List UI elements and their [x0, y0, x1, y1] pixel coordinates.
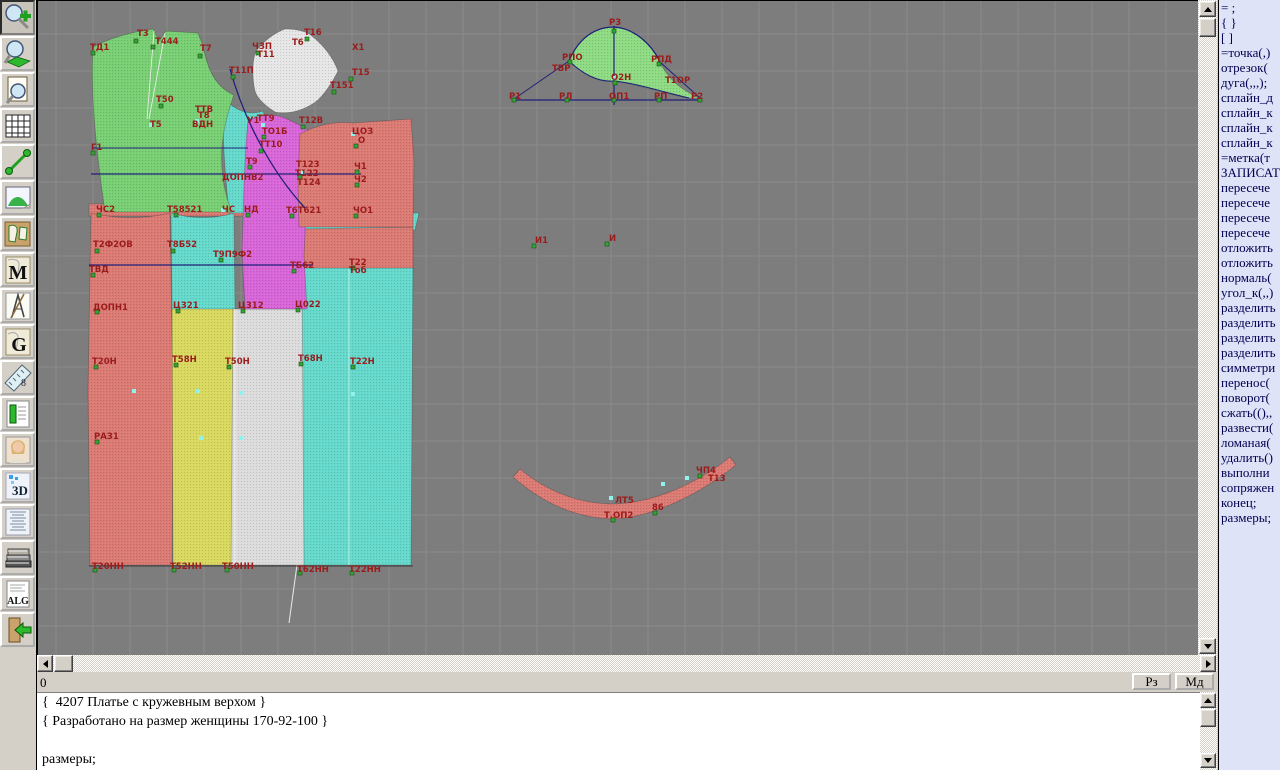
point-label: Т58521	[167, 205, 202, 215]
point-label: ТД1	[90, 43, 109, 53]
point-label: Т7	[200, 44, 212, 54]
scroll-right-button[interactable]	[1200, 655, 1216, 672]
exit-button[interactable]	[0, 612, 35, 647]
point-label: Т3	[137, 29, 149, 39]
portrait-icon	[2, 434, 33, 465]
point-label: Т15	[352, 68, 370, 78]
command-item[interactable]: разделить	[1219, 300, 1280, 315]
point-label: ВДН	[192, 120, 213, 130]
point-label: Ч1	[354, 162, 367, 172]
point-label: ТО1Б	[262, 127, 287, 137]
edscroll-thumb[interactable]	[1200, 709, 1216, 727]
ruler-icon: 8	[2, 362, 33, 393]
command-item[interactable]: ЗАПИСАТ	[1219, 165, 1280, 180]
point-marker-green[interactable]	[198, 54, 202, 58]
point-label: ДОПН1	[93, 303, 128, 313]
command-item[interactable]: разделить	[1219, 345, 1280, 360]
point-label: О2Н	[611, 73, 631, 83]
grid-icon	[2, 110, 33, 141]
point-label: Т11П	[229, 66, 254, 76]
status-row: 0 Рз Мд	[37, 672, 1217, 692]
command-item[interactable]: поворот(	[1219, 390, 1280, 405]
command-item[interactable]: выполни	[1219, 465, 1280, 480]
point-label: РП	[654, 92, 667, 102]
point-label: Т50	[156, 95, 174, 105]
picture-icon	[2, 182, 33, 213]
point-label: Т6	[292, 38, 304, 48]
up-arrow-icon	[1204, 694, 1212, 703]
piece-texture	[302, 268, 413, 565]
point-label: ОП1	[609, 92, 629, 102]
vscroll-thumb[interactable]	[1199, 18, 1216, 37]
point-label: И1	[535, 236, 548, 246]
pattern-drawing: ТД1Т3Т444Т7Т50Т5Г1ТТВТ8ВДНТ11ПЧЗПТ11Т6Т1…	[38, 1, 1198, 655]
letter-g-icon: G	[2, 326, 33, 357]
point-label: ЧО1	[353, 206, 373, 216]
point-label: Т444	[155, 37, 179, 47]
command-item[interactable]: размеры;	[1219, 510, 1280, 525]
command-item[interactable]: пересече	[1219, 180, 1280, 195]
point-label: Т5	[150, 120, 162, 130]
table-icon	[2, 398, 33, 429]
command-item[interactable]: отложить	[1219, 255, 1280, 270]
svg-text:ALG: ALG	[7, 596, 29, 607]
patterns-button[interactable]	[0, 216, 35, 251]
point-label: ДОПНВ2	[222, 173, 264, 183]
point-label: Ц321	[173, 301, 199, 311]
code-line: { 4207 Платье с кружевным верхом }	[37, 693, 1200, 712]
canvas-horizontal-scrollbar[interactable]	[37, 655, 1217, 672]
point-label: Т6Т621	[286, 206, 321, 216]
scroll-left-button[interactable]	[37, 655, 53, 672]
books-icon	[2, 542, 33, 573]
picture-button[interactable]	[0, 180, 35, 215]
point-marker-cyan[interactable]	[196, 389, 200, 393]
scroll-up-button[interactable]	[1199, 1, 1216, 17]
command-list: = ;{ }[ ]=точка(,)отрезок(дуга(,,,);спла…	[1218, 0, 1280, 770]
command-item[interactable]: дуга(,,,);	[1219, 75, 1280, 90]
point-marker-cyan[interactable]	[132, 389, 136, 393]
grid-button[interactable]	[0, 108, 35, 143]
point-label: Т9П9Ф2	[213, 250, 252, 260]
scroll-down-button[interactable]	[1199, 638, 1216, 654]
point-label: Т68Н	[298, 354, 323, 364]
point-label: Т16	[304, 28, 322, 38]
point-label: Т.ОП2	[604, 511, 633, 521]
model-photo-button[interactable]	[0, 432, 35, 467]
segment-button[interactable]	[0, 144, 35, 179]
point-marker-cyan[interactable]	[685, 476, 689, 480]
command-item[interactable]: =метка(т	[1219, 150, 1280, 165]
toolbar: M G 8	[0, 0, 37, 770]
drawing-canvas[interactable]: ТД1Т3Т444Т7Т50Т5Г1ТТВТ8ВДНТ11ПЧЗПТ11Т6Т1…	[37, 0, 1198, 655]
command-item[interactable]: сплайн_к	[1219, 120, 1280, 135]
zoom-fit-icon	[2, 38, 33, 69]
command-item[interactable]: { }	[1219, 15, 1280, 30]
segment-icon	[2, 146, 33, 177]
editor-scroll-up-button[interactable]	[1200, 693, 1216, 708]
point-label: Т151	[330, 81, 354, 91]
command-item[interactable]: угол_к(,,)	[1219, 285, 1280, 300]
table-button[interactable]	[0, 396, 35, 431]
view-3d-button[interactable]: 3D	[0, 468, 35, 503]
point-marker-cyan[interactable]	[199, 436, 203, 440]
point-label: РПД	[651, 55, 672, 65]
command-item[interactable]: разделить	[1219, 315, 1280, 330]
point-label: Т1ОР	[665, 76, 690, 86]
print-preview-icon	[2, 74, 33, 105]
point-label: ЛТ5	[615, 496, 634, 506]
command-item[interactable]: конец;	[1219, 495, 1280, 510]
point-label: Т13	[708, 474, 726, 484]
zoom-in-icon	[2, 2, 33, 33]
point-marker-cyan[interactable]	[661, 482, 665, 486]
down-arrow-icon	[1204, 758, 1212, 767]
point-label: Т62НН	[297, 565, 329, 575]
patterns-icon	[2, 218, 33, 249]
text-list-icon	[2, 506, 33, 537]
code-line: размеры;	[37, 750, 1200, 769]
grading-g-button[interactable]: G	[0, 324, 35, 359]
point-label: ЧС2	[96, 205, 115, 215]
point-label: Т20НН	[92, 562, 124, 572]
point-label: Ч2	[354, 175, 367, 185]
point-marker-cyan[interactable]	[239, 436, 243, 440]
point-marker-cyan[interactable]	[609, 496, 613, 500]
command-item[interactable]: [ ]	[1219, 30, 1280, 45]
command-item[interactable]: сопряжен	[1219, 480, 1280, 495]
command-item[interactable]: =точка(,)	[1219, 45, 1280, 60]
point-marker-cyan[interactable]	[351, 392, 355, 396]
code-line	[37, 731, 1200, 750]
point-label: ТТ10	[259, 140, 283, 150]
command-item[interactable]: сплайн_д	[1219, 90, 1280, 105]
compass-icon	[2, 290, 33, 321]
point-label: Т50НН	[222, 562, 254, 572]
hscroll-track[interactable]	[37, 655, 1217, 672]
point-label: Г1	[91, 143, 102, 153]
point-label: НД	[244, 205, 259, 215]
code-line: { Разработано на размер женщины 170-92-1…	[37, 712, 1200, 731]
down-arrow-icon	[1204, 644, 1212, 653]
point-label: Т8Б52	[167, 240, 197, 250]
alg-icon: ALG	[2, 578, 33, 609]
command-item[interactable]: пересече	[1219, 225, 1280, 240]
command-item[interactable]: пересече	[1219, 210, 1280, 225]
svg-text:G: G	[11, 334, 27, 356]
command-item[interactable]: сплайн_к	[1219, 105, 1280, 120]
point-label: ТТ9	[257, 114, 275, 124]
point-label: Т22Н	[350, 357, 375, 367]
command-item[interactable]: отложить	[1219, 240, 1280, 255]
point-label: О	[358, 136, 365, 146]
svg-text:M: M	[9, 262, 28, 284]
point-label: Р2	[691, 92, 703, 102]
command-item[interactable]: развести(	[1219, 420, 1280, 435]
point-label: Т2Ф2ОВ	[93, 240, 133, 250]
command-item[interactable]: перенос(	[1219, 375, 1280, 390]
status-value: 0	[40, 675, 47, 691]
point-label: Т50Н	[225, 357, 250, 367]
point-label: Тоб	[349, 265, 367, 276]
point-label: ТБ62	[290, 261, 314, 271]
point-marker-cyan[interactable]	[239, 391, 243, 395]
editor-scroll-down-button[interactable]	[1200, 753, 1216, 768]
threed-icon: 3D	[2, 470, 33, 501]
command-item[interactable]: разделить	[1219, 330, 1280, 345]
point-label: РПО	[562, 53, 583, 63]
command-item[interactable]: отрезок(	[1219, 60, 1280, 75]
point-label: Т11	[257, 50, 275, 60]
marking-m-button[interactable]: M	[0, 252, 35, 287]
command-item[interactable]: сплайн_к	[1219, 135, 1280, 150]
point-marker-green[interactable]	[612, 29, 616, 33]
command-item[interactable]: сжать((),,	[1219, 405, 1280, 420]
point-label: Т12В	[299, 116, 323, 126]
rz-button[interactable]: Рз	[1132, 673, 1171, 690]
zoom-in-button[interactable]	[0, 0, 35, 35]
ruler-button[interactable]: 8	[0, 360, 35, 395]
program-editor[interactable]: { 4207 Платье с кружевным верхом }{ Разр…	[37, 692, 1200, 770]
point-label: РЛ	[559, 92, 572, 102]
letter-m-icon: M	[2, 254, 33, 285]
point-label: РАЗ1	[94, 432, 119, 442]
right-arrow-icon	[1206, 660, 1215, 668]
print-preview-button[interactable]	[0, 72, 35, 107]
up-arrow-icon	[1204, 3, 1212, 12]
point-label: Т124	[297, 178, 321, 188]
command-item[interactable]: удалить()	[1219, 450, 1280, 465]
editor-vertical-scrollbar[interactable]	[1200, 692, 1217, 770]
point-label: Р1	[509, 92, 521, 102]
point-label: ТВД	[89, 265, 109, 275]
point-label: Т20Н	[92, 357, 117, 367]
zoom-fit-button[interactable]	[0, 36, 35, 71]
point-label: 86	[652, 503, 664, 513]
text-list-button[interactable]	[0, 504, 35, 539]
piece-texture	[172, 309, 235, 565]
svg-text:8: 8	[21, 378, 26, 389]
point-label: Р3	[609, 18, 621, 28]
point-label: Х1	[352, 43, 365, 53]
command-item[interactable]: = ;	[1219, 0, 1280, 15]
design-tools-button[interactable]	[0, 288, 35, 323]
point-label: Т58Н	[172, 355, 197, 365]
point-label: Ц022	[295, 300, 321, 310]
piece-texture	[171, 213, 235, 311]
command-item[interactable]: симметри	[1219, 360, 1280, 375]
point-label: И	[609, 234, 616, 244]
point-label: ТВР	[552, 64, 571, 74]
algorithms-button[interactable]: ALG	[0, 576, 35, 611]
point-label: Т52НН	[170, 562, 202, 572]
hscroll-thumb[interactable]	[54, 655, 73, 672]
point-label: Т22НН	[349, 565, 381, 575]
svg-text:3D: 3D	[12, 483, 28, 498]
point-marker-green[interactable]	[134, 39, 138, 43]
command-item[interactable]: ломаная(	[1219, 435, 1280, 450]
point-label: Т9	[246, 157, 258, 167]
point-label: Ц312	[238, 301, 264, 311]
command-item[interactable]: пересече	[1219, 195, 1280, 210]
md-button[interactable]: Мд	[1175, 673, 1214, 690]
library-button[interactable]	[0, 540, 35, 575]
point-label: ЧС	[222, 205, 235, 215]
vscroll-track[interactable]	[1198, 0, 1217, 655]
command-item[interactable]: нормаль(	[1219, 270, 1280, 285]
canvas-vertical-scrollbar[interactable]	[1198, 0, 1217, 655]
left-arrow-icon	[39, 660, 48, 668]
exit-icon	[2, 614, 33, 645]
